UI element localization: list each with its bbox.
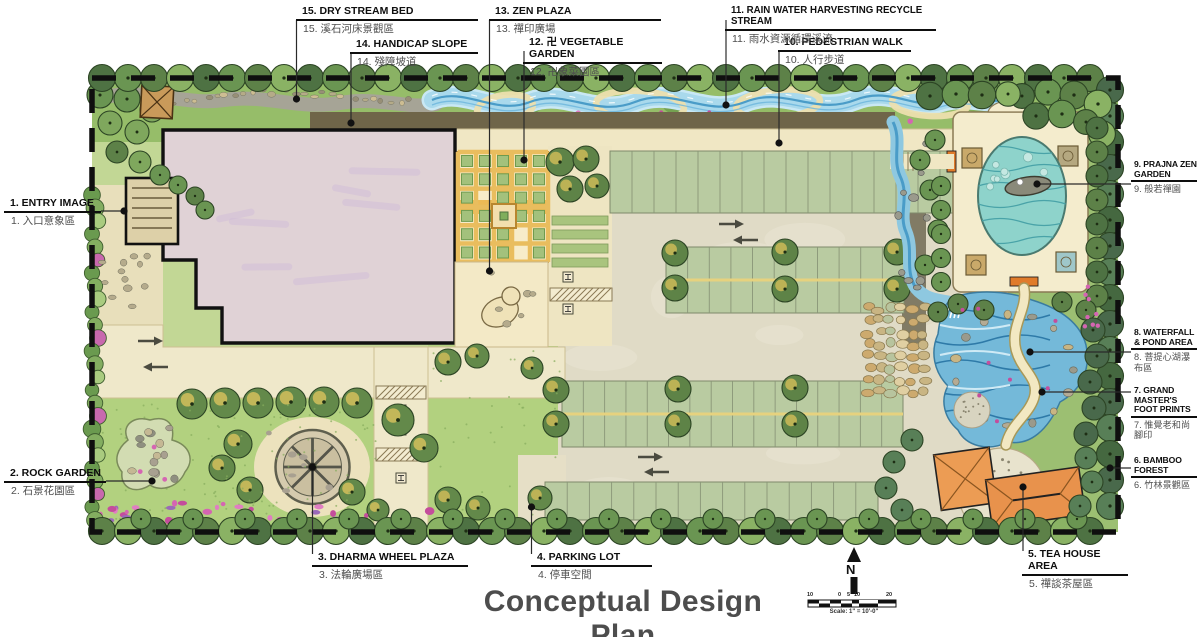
callout-en: 11. RAIN WATER HARVESTING RECYCLE STREAM xyxy=(725,6,936,31)
scale-caption: Scale: 1" = 10'-0" xyxy=(806,609,902,615)
north-arrow-icon: N xyxy=(841,547,867,595)
callout-rock-garden: 2. ROCK GARDEN2. 石景花園區 xyxy=(4,468,106,497)
callout-en: 6. BAMBOO FOREST xyxy=(1131,456,1197,478)
callout-entry-image: 1. ENTRY IMAGE1. 入口意象區 xyxy=(4,198,101,227)
callout-en: 13. ZEN PLAZA xyxy=(489,6,661,21)
callout-en: 9. PRAJNA ZEN GARDEN xyxy=(1131,160,1197,182)
callout-bamboo-forest: 6. BAMBOO FOREST6. 竹林景觀區 xyxy=(1131,456,1197,491)
callout-en: 5. TEA HOUSE AREA xyxy=(1022,549,1128,576)
callout-zh: 11. 雨水資源循環溪流 xyxy=(725,31,936,45)
callout-zh: 8. 菩提心湖瀑布區 xyxy=(1131,350,1197,373)
north-label: N xyxy=(846,562,855,577)
site-plan-drawing xyxy=(0,0,1200,637)
callout-en: 2. ROCK GARDEN xyxy=(4,468,106,483)
callout-en: 7. GRAND MASTER'S FOOT PRINTS xyxy=(1131,386,1197,418)
callout-handicap-slope: 14. HANDICAP SLOPE14. 殘障坡道 xyxy=(350,39,478,68)
scale-tick: 10 xyxy=(807,592,813,598)
callout-en: 3. DHARMA WHEEL PLAZA xyxy=(312,552,468,567)
callout-en: 15. DRY STREAM BED xyxy=(296,6,478,21)
page-title: Conceptual Design Plan xyxy=(448,585,798,637)
callout-tea-house-area: 5. TEA HOUSE AREA5. 禪談茶屋區 xyxy=(1022,549,1128,590)
callout-zh: 3. 法輪廣場區 xyxy=(312,567,468,581)
callout-zh: 15. 溪石河床景觀區 xyxy=(296,21,478,35)
callout-en: 1. ENTRY IMAGE xyxy=(4,198,101,213)
callout-zh: 4. 停車空間 xyxy=(531,567,652,581)
callout-dharma-wheel-plaza: 3. DHARMA WHEEL PLAZA3. 法輪廣場區 xyxy=(312,552,468,581)
callout-zh: 2. 石景花園區 xyxy=(4,483,106,497)
callout-waterfall-pond-area: 8. WATERFALL & POND AREA8. 菩提心湖瀑布區 xyxy=(1131,328,1197,373)
callout-zh: 6. 竹林景觀區 xyxy=(1131,478,1197,491)
callout-parking-lot: 4. PARKING LOT4. 停車空間 xyxy=(531,552,652,581)
callout-zen-plaza: 13. ZEN PLAZA13. 禪印廣場 xyxy=(489,6,661,35)
scale-tick: 0 xyxy=(838,592,841,598)
callout-grand-masters-foot-prints: 7. GRAND MASTER'S FOOT PRINTS7. 惟覺老和尚腳印 xyxy=(1131,386,1197,441)
callout-vegetable-garden: 12. 卍 VEGETABLE GARDEN12. 卍象菜園區 xyxy=(523,37,662,78)
callout-zh: 12. 卍象菜園區 xyxy=(523,64,662,78)
callout-zh: 13. 禪印廣場 xyxy=(489,21,661,35)
callout-rain-water-harvesting-recycle-stream: 11. RAIN WATER HARVESTING RECYCLE STREAM… xyxy=(725,6,936,45)
callout-prajna-zen-garden: 9. PRAJNA ZEN GARDEN9. 般若禪園 xyxy=(1131,160,1197,195)
callout-en: 14. HANDICAP SLOPE xyxy=(350,39,478,54)
callout-zh: 10. 人行步道 xyxy=(778,52,911,66)
callout-en: 12. 卍 VEGETABLE GARDEN xyxy=(523,37,662,64)
callout-zh: 5. 禪談茶屋區 xyxy=(1022,576,1128,590)
callout-dry-stream-bed: 15. DRY STREAM BED15. 溪石河床景觀區 xyxy=(296,6,478,35)
scale-tick: 20 xyxy=(886,592,892,598)
scale-tick: 10 xyxy=(854,592,860,598)
callout-zh: 14. 殘障坡道 xyxy=(350,54,478,68)
callout-zh: 9. 般若禪園 xyxy=(1131,182,1197,195)
callout-zh: 1. 入口意象區 xyxy=(4,213,101,227)
conceptual-design-plan-sheet: 1. ENTRY IMAGE1. 入口意象區 2. ROCK GARDEN2. … xyxy=(0,0,1200,637)
scale-bar-graphic xyxy=(806,599,902,609)
scale-tick: 5 xyxy=(847,592,850,598)
callout-en: 8. WATERFALL & POND AREA xyxy=(1131,328,1197,350)
callout-zh: 7. 惟覺老和尚腳印 xyxy=(1131,418,1197,441)
callout-en: 4. PARKING LOT xyxy=(531,552,652,567)
